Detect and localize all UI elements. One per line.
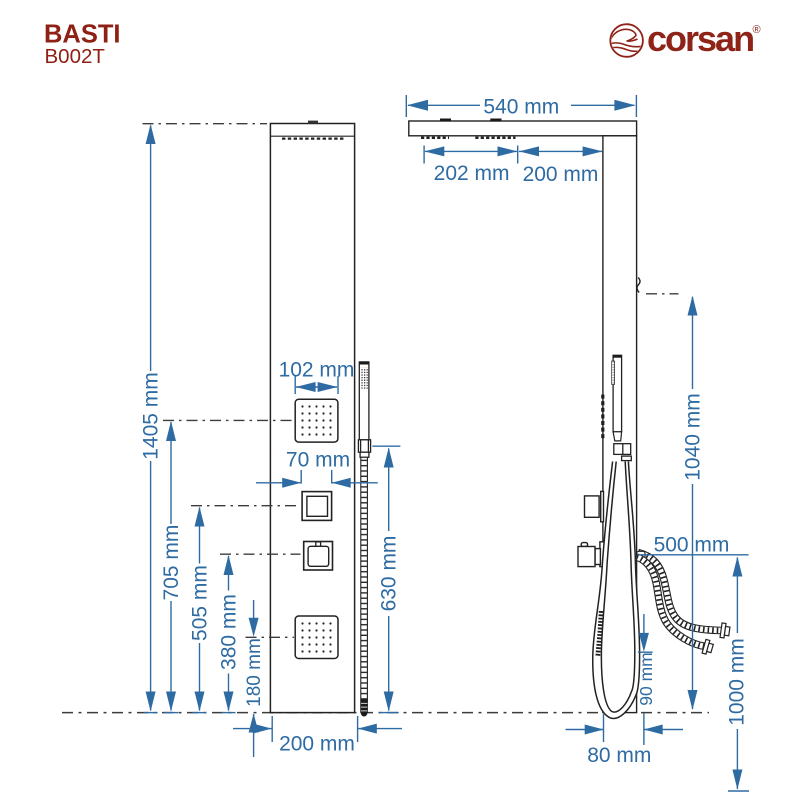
svg-text:1405 mm: 1405 mm xyxy=(140,372,163,460)
svg-text:505 mm: 505 mm xyxy=(189,565,212,641)
svg-text:202 mm: 202 mm xyxy=(434,162,510,185)
svg-text:200 mm: 200 mm xyxy=(523,163,599,186)
svg-text:630 mm: 630 mm xyxy=(378,536,401,612)
svg-text:540 mm: 540 mm xyxy=(483,96,559,119)
svg-text:200 mm: 200 mm xyxy=(279,733,355,756)
svg-text:1040 mm: 1040 mm xyxy=(682,393,705,481)
svg-text:90 mm: 90 mm xyxy=(636,652,656,705)
svg-text:corsan: corsan xyxy=(647,18,753,59)
svg-text:B002T: B002T xyxy=(45,45,106,68)
svg-text:80 mm: 80 mm xyxy=(587,744,651,767)
svg-text:1000 mm: 1000 mm xyxy=(726,638,749,726)
svg-text:102 mm: 102 mm xyxy=(279,359,355,382)
svg-text:180 mm: 180 mm xyxy=(244,638,265,707)
svg-text:70 mm: 70 mm xyxy=(286,449,350,472)
svg-text:705 mm: 705 mm xyxy=(160,525,183,601)
svg-text:500 mm: 500 mm xyxy=(654,534,730,557)
svg-text:380 mm: 380 mm xyxy=(218,594,241,670)
svg-text:®: ® xyxy=(753,24,761,36)
